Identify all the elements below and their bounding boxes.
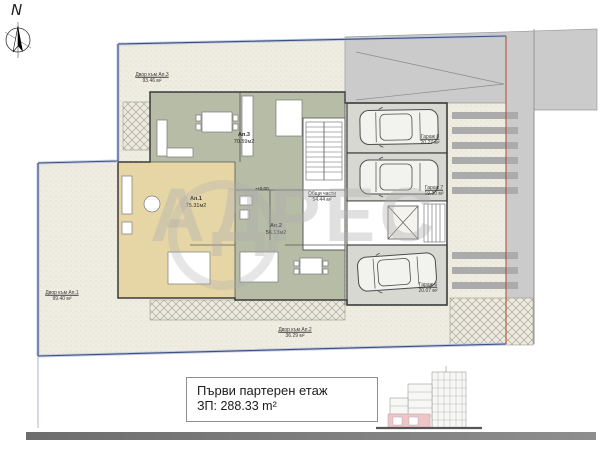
yard-ap2-label: Двор към Ап.2 36.29 м² [278, 327, 311, 340]
apartment-1-label: Ап.1 75.31м2 [186, 196, 207, 210]
floor-built-area: ЗП: 288.33 m² [197, 399, 367, 415]
north-arrow-icon [5, 22, 31, 58]
apartment-3-label: Ап.3 70.59м2 [234, 132, 255, 146]
yard-ap3-label: Двор към Ап.3 93.46 м² [135, 72, 168, 85]
floor-plan-page: N Двор към Ап.3 93.46 м² Двор към Ап.1 9… [0, 0, 600, 450]
bottom-divider-bar [26, 432, 596, 440]
floor-title: Първи партерен етаж [197, 383, 367, 399]
apartment-2-label: Ап.2 56.13м2 [266, 223, 287, 237]
staircase [306, 122, 342, 180]
garage-6-label: Гараж 6 20.07 м² [418, 282, 437, 295]
building-section-thumbnail [376, 366, 482, 428]
garage-8-label: Гараж 8 20.27 м² [420, 134, 439, 147]
elevator-shaft [388, 206, 418, 239]
level-mark-label: ▪+0.00 [255, 186, 268, 192]
rear-stair-flight [424, 204, 445, 242]
caption-box: Първи партерен етаж ЗП: 288.33 m² [186, 377, 378, 422]
common-area-label: Общи части 54.44 м² [308, 191, 336, 204]
yard-ap1-label: Двор към Ап.1 99.40 м² [45, 290, 78, 303]
north-letter: N [11, 1, 22, 19]
garage-7-label: Гараж 7 19.30 м² [424, 185, 443, 198]
